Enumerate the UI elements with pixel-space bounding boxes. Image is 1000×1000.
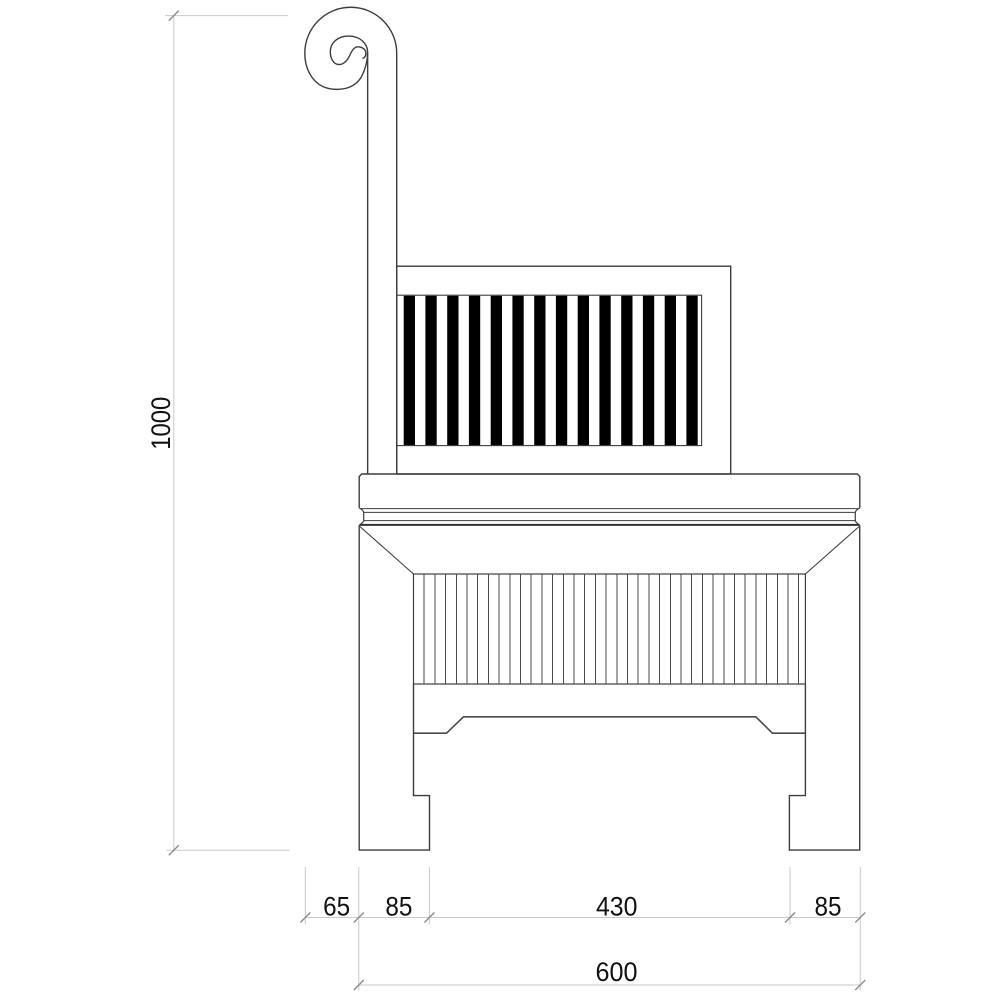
svg-text:65: 65 <box>323 891 350 921</box>
svg-text:1000: 1000 <box>146 397 176 450</box>
svg-text:85: 85 <box>385 891 412 921</box>
svg-text:430: 430 <box>596 891 638 921</box>
svg-text:85: 85 <box>815 891 842 921</box>
svg-text:600: 600 <box>596 957 638 987</box>
